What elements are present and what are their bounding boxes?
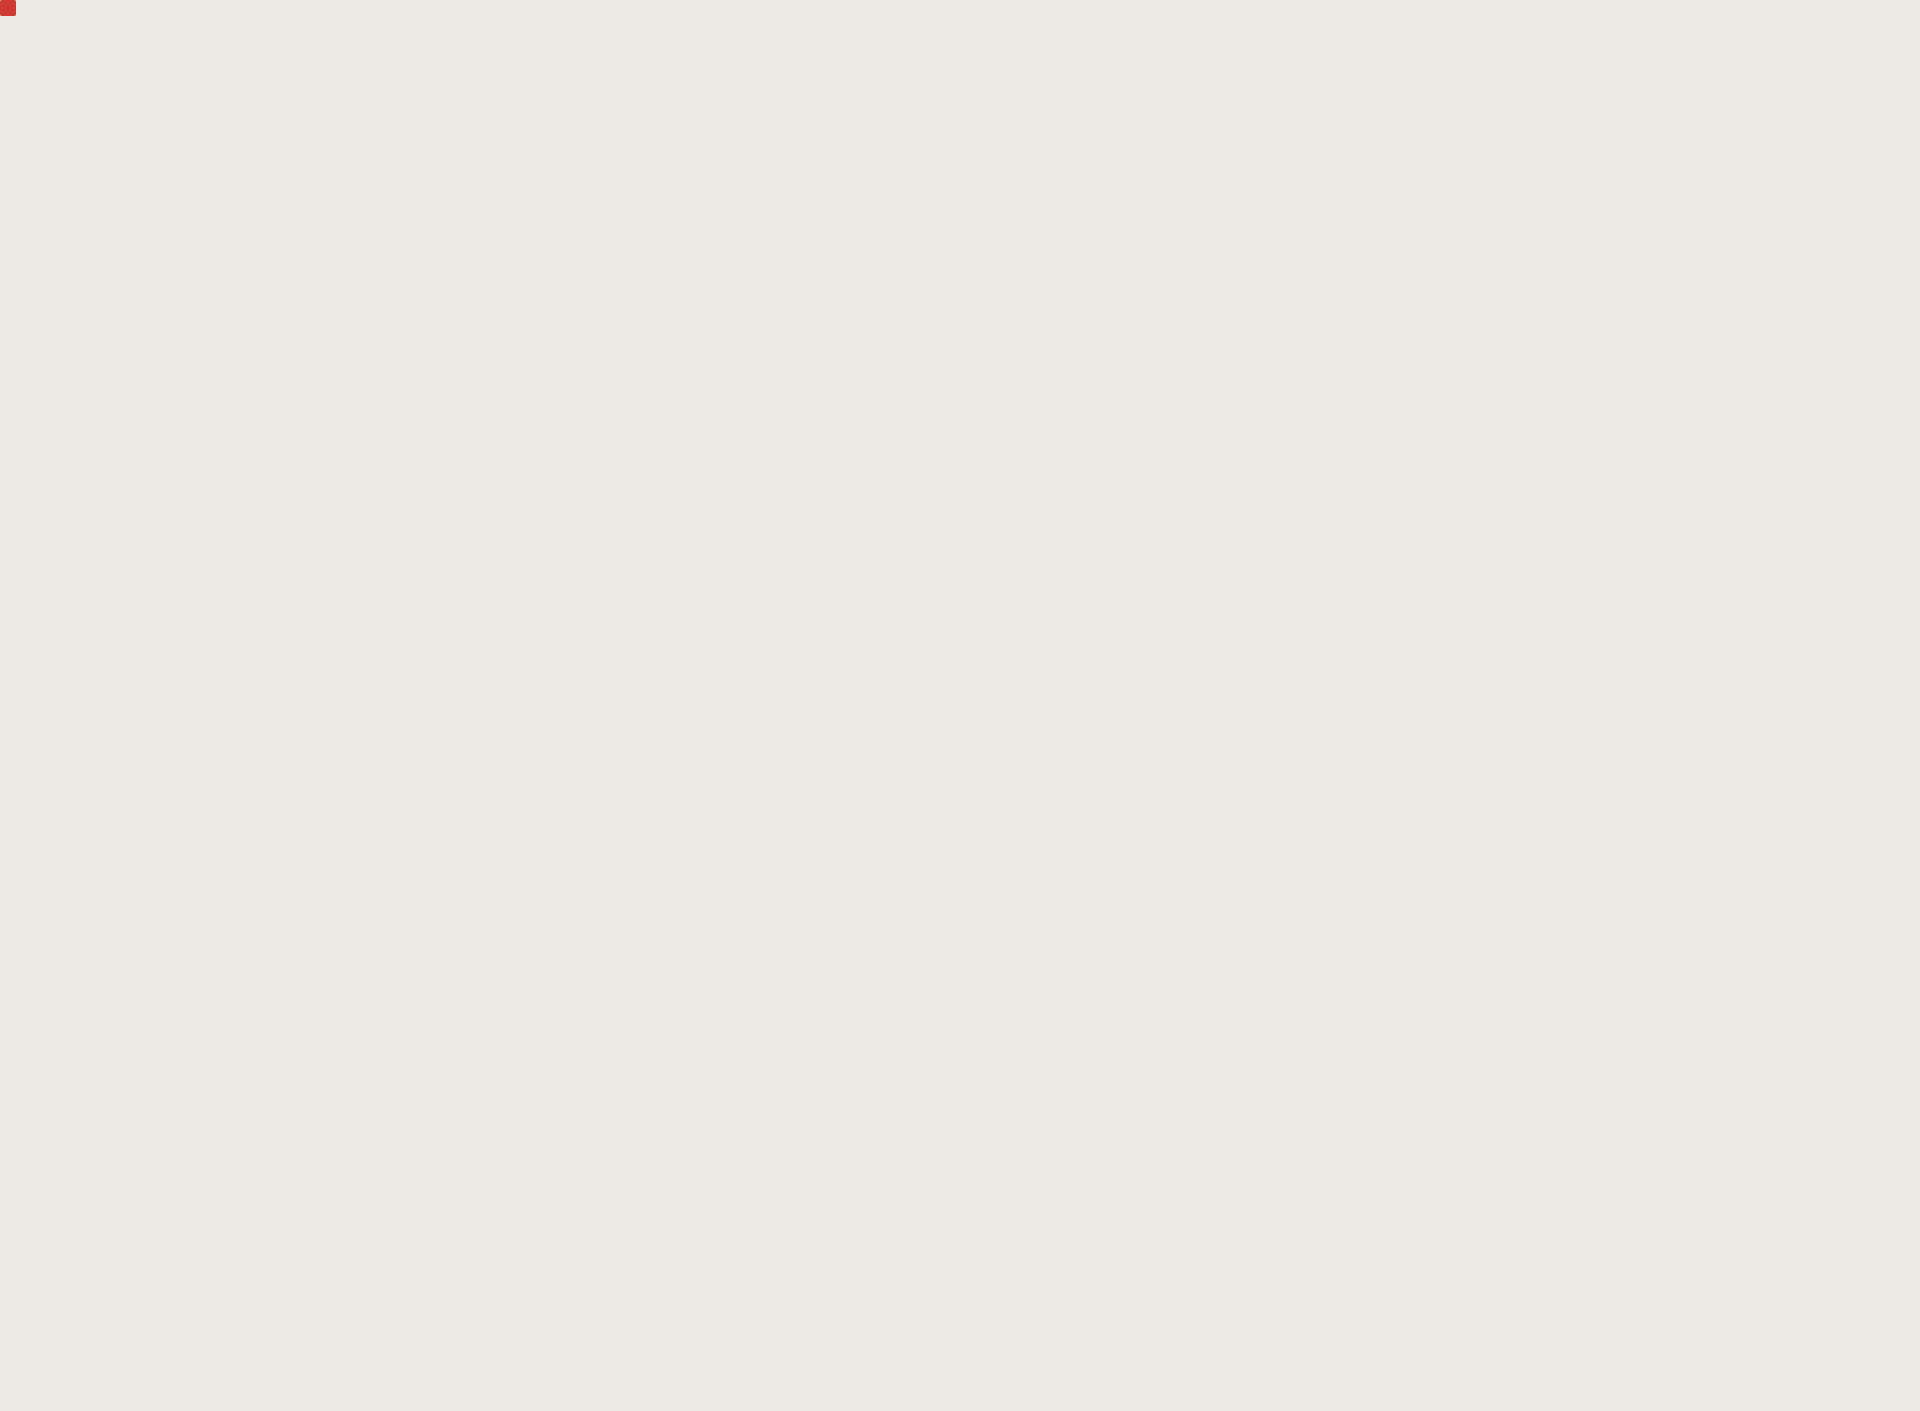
highlighted-parcel-outline [0, 0, 16, 16]
map-base-layer [0, 0, 1920, 1411]
map-canvas[interactable] [0, 0, 1920, 1411]
